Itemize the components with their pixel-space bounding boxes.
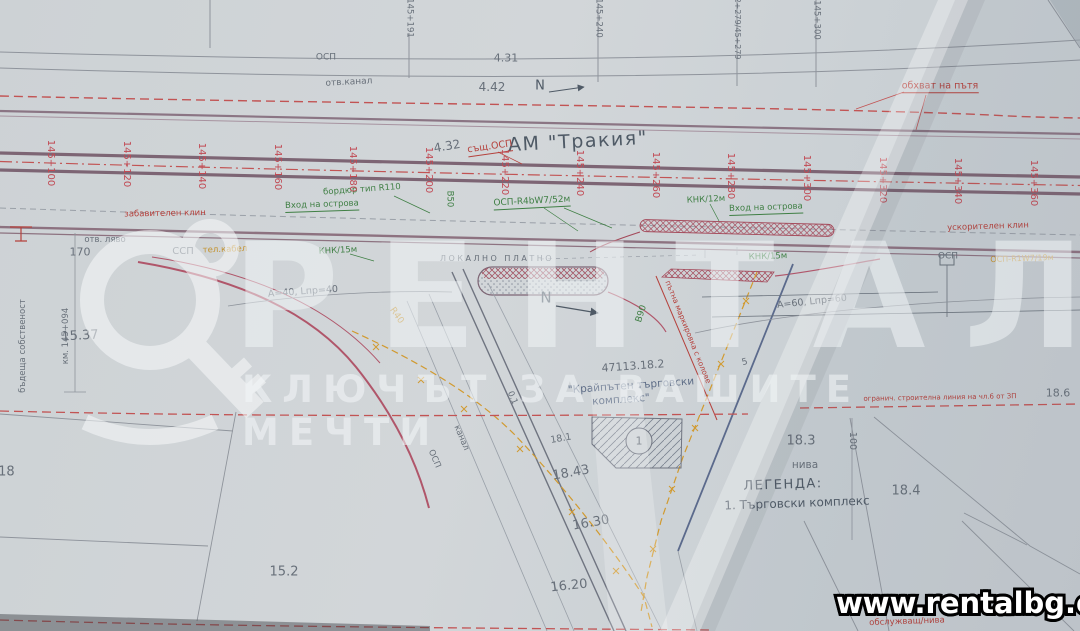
label-kanal-diag: канал — [452, 424, 470, 452]
label-station-145-100: 145+100 — [45, 139, 55, 186]
label-parcel-18-1: 18.1 — [550, 432, 572, 445]
label-niva-18-3: нива — [792, 460, 818, 471]
label-dim-170: 170 — [70, 247, 91, 258]
label-v50: В50 — [445, 191, 454, 208]
label-station-145-120: 145+120 — [121, 141, 131, 188]
label-station-145-220: 145+220 — [499, 149, 509, 196]
annotation-layer: ОСПотв.канал4.314.42Nобхват на пътя145+1… — [0, 0, 1080, 631]
label-badeshta-sobstvenost: бъдеща собственост — [19, 299, 28, 393]
label-knk-15m-left: КНК/15м — [319, 246, 358, 257]
label-km-145-094: км. 145+094 — [62, 308, 71, 365]
label-bordyur-r110: бордюр тип R110 — [323, 183, 401, 197]
watermark-url: www.rentalbg.com — [836, 586, 1080, 620]
label-tel-kabel: тел.кабел — [203, 245, 248, 255]
label-parcel-18-18: 18.18 — [0, 466, 15, 479]
label-dim-4-31: 4.31 — [494, 53, 519, 64]
label-station-145-280: 145+280 — [725, 153, 735, 200]
label-station-145-320: 145+320 — [877, 156, 887, 203]
label-lokalno-platno: ЛОКАЛНО ПЛАТНО — [440, 255, 554, 263]
label-parcel-47113-18-2: 47113.18.2 — [601, 358, 665, 373]
label-osp-diag: ОСП — [426, 449, 441, 470]
label-marking-note: пътна маркировка с колове — [664, 280, 712, 385]
label-station-145-180: 145+180 — [347, 145, 357, 192]
label-dim-a60: А=60, Lпр=60 — [777, 294, 848, 311]
label-osp-r1w7: ОСП-R1W7/19м — [990, 254, 1054, 264]
label-osp-top: ОСП — [316, 54, 336, 63]
label-legend-item-1: 1. Търговски комплекс — [724, 494, 870, 511]
label-north-arrow-mid-letter: N — [540, 291, 551, 306]
label-dim-4-42: 4.42 — [479, 81, 506, 93]
label-ref-145-191: 145+191 — [405, 0, 414, 38]
label-station-145-240: 145+240 — [574, 150, 584, 197]
label-knk-15m-right: КНК/15м — [749, 252, 788, 262]
label-otv-lyavo: отв. ляво — [84, 236, 125, 245]
label-station-145-160: 145+160 — [272, 144, 282, 191]
label-station-145-300: 145+300 — [801, 155, 811, 202]
label-station-145-340: 145+340 — [952, 158, 962, 205]
label-dim-0-1: 0.1 — [505, 390, 518, 406]
label-ref-145-300: 145+300 — [812, 0, 821, 40]
label-ref-62-279: 62+279/45+279 — [733, 0, 741, 60]
label-otv-kanal: отв.канал — [325, 77, 372, 88]
label-vhod-ostrova-right: Вход на острова — [729, 202, 803, 215]
label-ssp-left: ССП — [172, 247, 193, 257]
label-parcel-16-20: 16.20 — [550, 578, 588, 595]
label-parcel-18-6: 18.6 — [1046, 388, 1071, 399]
label-vhod-ostrova-left: Вход на острова — [285, 199, 359, 212]
label-v90: В90 — [635, 304, 649, 324]
label-north-arrow-top-letter: N — [535, 80, 545, 93]
label-zabavitelen-klin: забавителен клин — [124, 209, 206, 219]
label-parcel-15-2: 15.2 — [270, 566, 299, 579]
label-ref-145-240: 145+240 — [594, 0, 603, 38]
label-knk-12m: КНК/12м — [687, 195, 726, 206]
label-legend-heading: ЛЕГЕНДА: — [743, 477, 823, 493]
label-parcel-18-3: 18.3 — [787, 435, 816, 448]
label-station-145-260: 145+260 — [650, 152, 660, 199]
label-parcel-18-43: 18.43 — [552, 463, 591, 482]
label-station-145-360: 145+360 — [1028, 159, 1038, 206]
label-parcel-18-4: 18.4 — [892, 485, 921, 498]
label-obhvat-na-patya: обхват на пътя — [902, 81, 979, 93]
label-uskoritelen-klin: ускорителен клин — [947, 221, 1029, 232]
label-kompleks-line2: комплекс" — [592, 393, 650, 407]
label-tick-5: 5 — [741, 358, 749, 368]
label-dim-100: 100 — [847, 432, 857, 450]
label-osp-right: ОСП — [938, 253, 958, 262]
label-station-145-200: 145+200 — [423, 147, 433, 194]
label-dim-a40: А=40, Lпр=40 — [268, 285, 339, 299]
label-building-number: 1 — [636, 436, 643, 447]
label-station-145-140: 145+140 — [196, 142, 206, 189]
label-parcel-16-30: 16.30 — [572, 513, 611, 532]
label-r40: R40 — [387, 306, 405, 326]
label-stroitelna-linia: огранич. строителна линия на чл.6 от ЗП — [863, 393, 1016, 403]
plan-photo: ОСПотв.канал4.314.42Nобхват на пътя145+1… — [0, 0, 1080, 631]
label-dim-4-32: 4.32 — [433, 138, 461, 154]
label-osp-r4bw7: ОСП-R4bW7/52м — [493, 195, 570, 210]
